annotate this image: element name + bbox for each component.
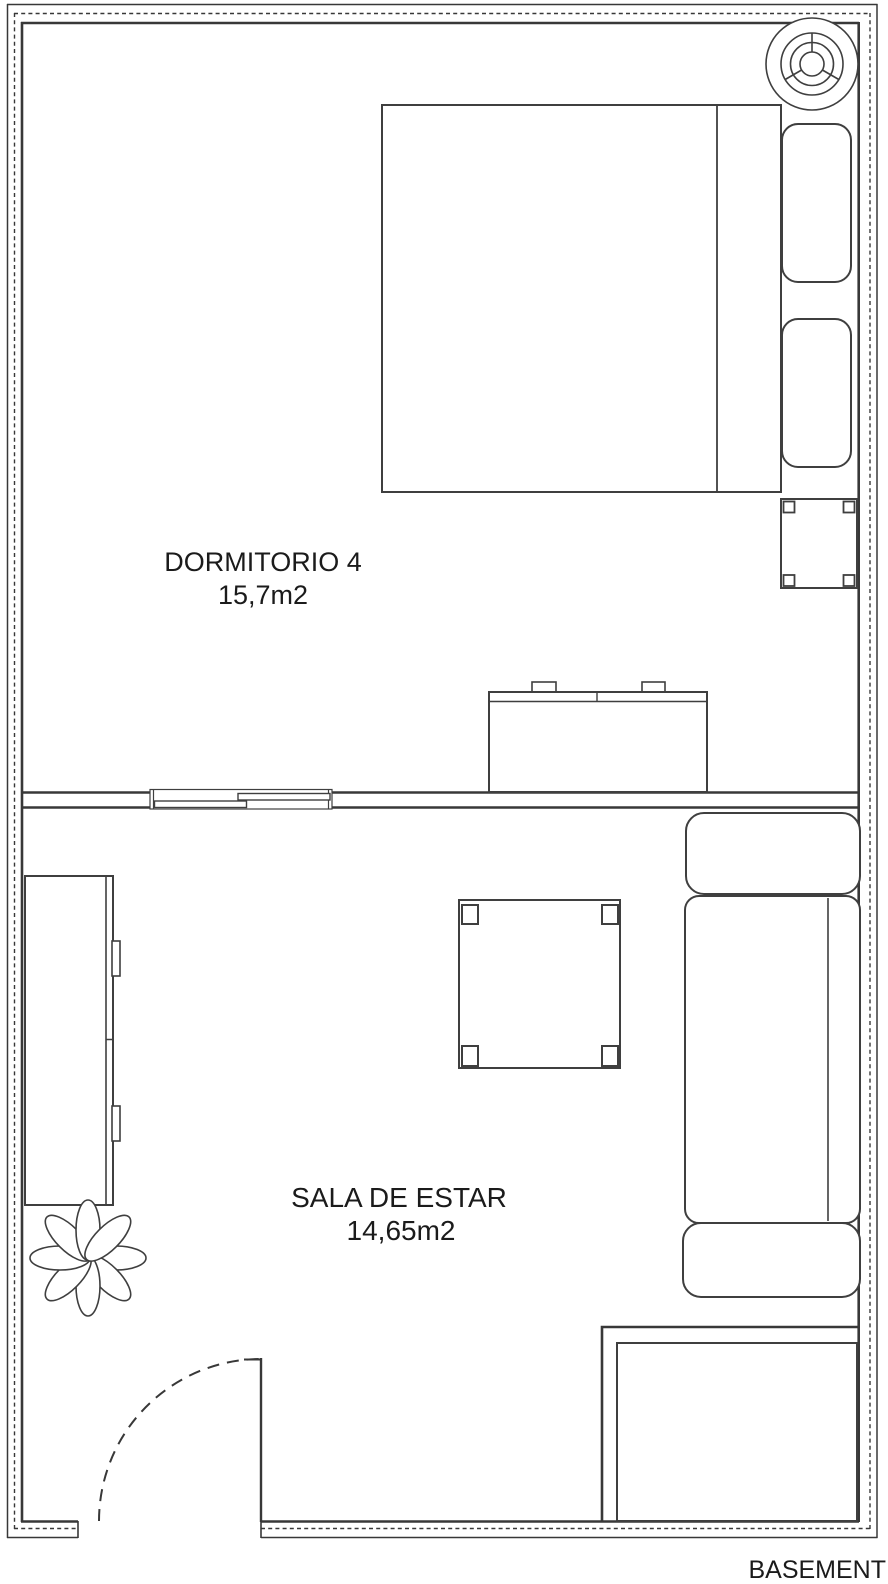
double-bed-icon xyxy=(382,105,851,492)
dresser-icon xyxy=(489,682,707,792)
alcove-wall xyxy=(601,1326,859,1522)
sliding-window-icon xyxy=(150,790,332,810)
door-swing-icon xyxy=(99,1358,261,1522)
basement-stairs-icon xyxy=(617,1343,857,1521)
floor-plan-image: DORMITORIO 4 15,7m2 SALA DE ESTAR 14,65m… xyxy=(0,0,888,1584)
sideboard-icon xyxy=(25,876,120,1205)
bedroom-name-label: DORMITORIO 4 xyxy=(164,547,362,577)
livingroom-name-label: SALA DE ESTAR xyxy=(291,1182,507,1213)
dividing-wall xyxy=(22,793,859,808)
coffee-table-icon xyxy=(459,900,620,1068)
plant-icon xyxy=(30,1200,146,1316)
ceiling-fan-icon xyxy=(766,18,858,110)
sofa-icon xyxy=(683,813,860,1297)
pillow-icon xyxy=(782,124,851,282)
bedroom-area-label: 15,7m2 xyxy=(218,580,308,610)
livingroom-area-label: 14,65m2 xyxy=(347,1215,456,1246)
nightstand-icon xyxy=(781,499,857,588)
pillow-icon xyxy=(782,319,851,467)
basement-label: BASEMENT xyxy=(748,1556,886,1584)
